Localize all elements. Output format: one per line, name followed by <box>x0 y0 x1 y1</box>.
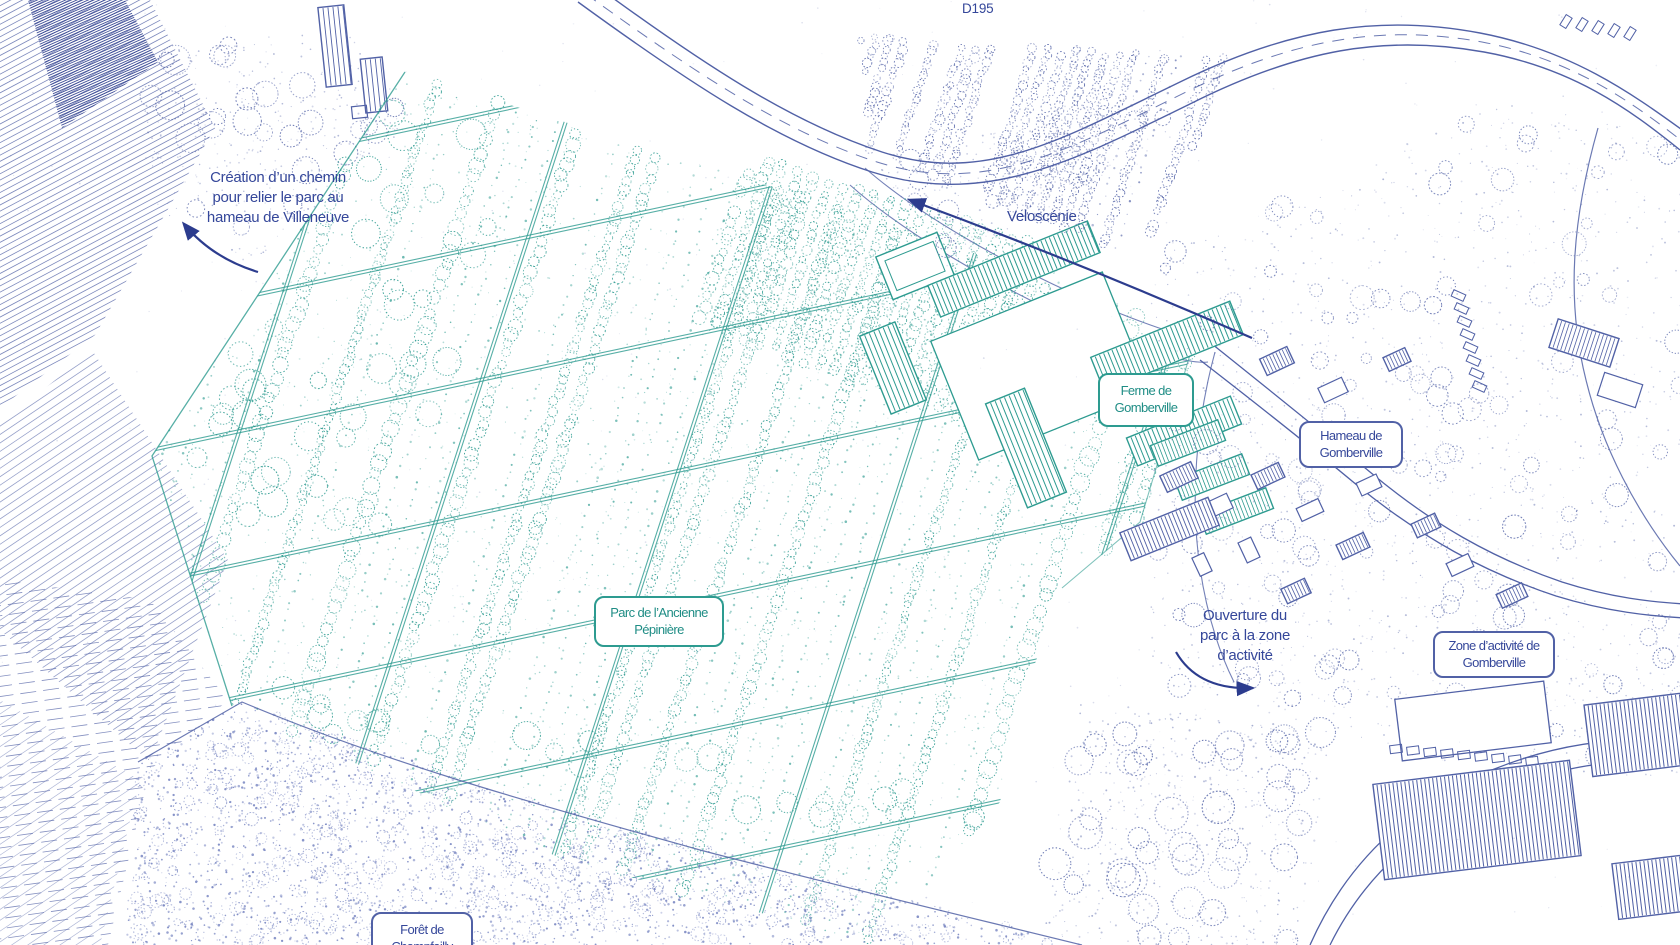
road-label-d195: D195 <box>962 1 993 16</box>
arrow-chemin-villeneuve <box>184 224 258 272</box>
path-label-veloscenie: Veloscénie <box>1007 208 1077 225</box>
place-label-ferme-de-gomberville: Ferme de Gomberville <box>1098 373 1194 427</box>
map-canvas: Création d’un chemin pour relier le parc… <box>0 0 1680 945</box>
map-drawing <box>0 0 1680 945</box>
place-label-zone-activite-gomberville: Zone d’activité de Gomberville <box>1433 631 1555 678</box>
annotation-ouverture-zone: Ouverture du parc à la zone d’activité <box>1182 606 1308 666</box>
annotation-chemin-villeneuve: Création d’un chemin pour relier le parc… <box>198 168 358 228</box>
place-label-foret-champfailly: Forêt de Champfailly <box>371 912 473 945</box>
place-label-parc-ancienne-pepiniere: Parc de l’Ancienne Pépinière <box>594 596 724 647</box>
place-label-hameau-de-gomberville: Hameau de Gomberville <box>1299 421 1403 468</box>
